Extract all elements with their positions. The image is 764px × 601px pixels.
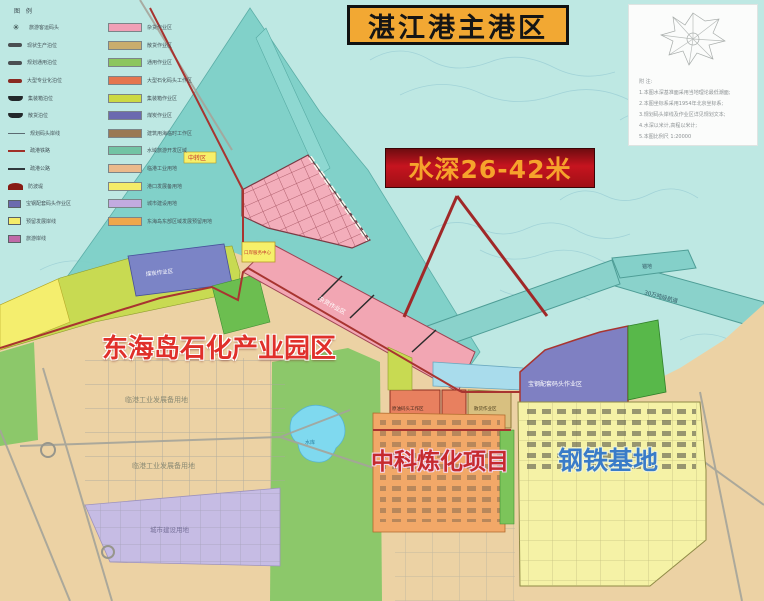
legend-item: 疏港公路 bbox=[8, 160, 108, 178]
ann-industry-1: 临港工业发展备用地 bbox=[125, 395, 188, 404]
legend-area-item: 通用作业区 bbox=[108, 54, 246, 72]
depth-callout: 水深26-42米 bbox=[385, 148, 595, 188]
legend-item-label: 大型专业化泊位 bbox=[27, 77, 62, 84]
legend-item: 现状生产泊位 bbox=[8, 37, 108, 55]
legend-item: 大型专业化泊位 bbox=[8, 72, 108, 90]
sym-blob-icon bbox=[8, 43, 22, 47]
legend-color-swatch bbox=[108, 94, 142, 103]
legend-item: 规划通用泊位 bbox=[8, 54, 108, 72]
legend-color-swatch bbox=[108, 23, 142, 32]
legend-area-label: 城市建设用地 bbox=[147, 200, 177, 207]
sym-blob-icon bbox=[8, 61, 22, 65]
sym-line-icon bbox=[8, 133, 25, 134]
sym-ship-icon bbox=[8, 96, 23, 101]
sym-line-dark-icon bbox=[8, 168, 25, 170]
legend-area-label: 散货作业区 bbox=[147, 42, 172, 49]
legend-area-label: 通用作业区 bbox=[147, 59, 172, 66]
legend-item-label: 散货泊位 bbox=[28, 112, 48, 119]
green-left-edge bbox=[0, 342, 38, 446]
legend-item: 规划码头岸线 bbox=[8, 125, 108, 143]
legend-color-swatch bbox=[108, 58, 142, 67]
green-belt bbox=[270, 348, 382, 601]
legend-area-list: 杂货作业区散货作业区通用作业区大型石化码头工作区集装箱作业区煤炭作业区建筑用海临… bbox=[108, 19, 246, 248]
label-petrochemical-park: 东海岛石化产业园区 bbox=[102, 328, 336, 365]
legend-area-item: 城市建设用地 bbox=[108, 195, 246, 213]
legend-item: 防波堤 bbox=[8, 177, 108, 195]
legend-item-label: 宝钢配套码头作业区 bbox=[26, 200, 71, 207]
legend-color-swatch bbox=[108, 217, 142, 226]
legend-item: 集装箱泊位 bbox=[8, 89, 108, 107]
sym-arc-icon bbox=[8, 183, 23, 190]
legend-item-label: 预留发展岸线 bbox=[26, 218, 56, 225]
note-line: 3.规划码头岸线及作业区详见规划文本; bbox=[639, 110, 753, 121]
sym-anchor-icon: ✳ bbox=[8, 24, 24, 32]
note-line: 5.本图比例尺 1:20000 bbox=[639, 132, 753, 143]
legend-area-label: 建筑用海临时工作区 bbox=[147, 130, 192, 137]
legend-color-swatch bbox=[108, 164, 142, 173]
legend-color-swatch bbox=[108, 111, 142, 120]
legend-area-item: 煤炭作业区 bbox=[108, 107, 246, 125]
note-line: 2.本图坐标系采用1954年北京坐标系; bbox=[639, 99, 753, 110]
legend-item: 旅游岸线 bbox=[8, 230, 108, 248]
ann-service: 口岸服务中心 bbox=[244, 249, 271, 256]
ann-lake: 水库 bbox=[305, 439, 315, 446]
legend-item: ✳旅游客运码头 bbox=[8, 19, 108, 37]
legend-item: 疏港铁路 bbox=[8, 142, 108, 160]
legend-symbol-list: ✳旅游客运码头现状生产泊位规划通用泊位大型专业化泊位集装箱泊位散货泊位规划码头岸… bbox=[8, 19, 108, 248]
legend-title: 图 例 bbox=[14, 6, 246, 15]
legend-area-item: 东海岛东部区域发展预留用地 bbox=[108, 213, 246, 231]
map-title: 湛江港主港区 bbox=[368, 6, 548, 45]
ann-anchorage: 锚地 bbox=[642, 263, 652, 270]
legend-color-swatch bbox=[108, 129, 142, 138]
legend-area-label: 港口发展备用地 bbox=[147, 183, 182, 190]
legend-item-label: 规划通用泊位 bbox=[27, 59, 57, 66]
legend-item: 散货泊位 bbox=[8, 107, 108, 125]
legend-area-label: 煤炭作业区 bbox=[147, 112, 172, 119]
legend-area-item: 集装箱作业区 bbox=[108, 89, 246, 107]
sym-rect-icon bbox=[8, 235, 21, 243]
sym-blob-red-icon bbox=[8, 79, 22, 83]
ann-oil: 原油码头工作区 bbox=[392, 405, 424, 412]
map-title-box: 湛江港主港区 bbox=[347, 5, 569, 45]
legend-area-item: 杂货作业区 bbox=[108, 19, 246, 37]
road-grid-industrial bbox=[85, 358, 285, 503]
legend-color-swatch bbox=[108, 41, 142, 50]
ann-city: 城市建设用地 bbox=[150, 525, 190, 534]
legend-area-item: 港口发展备用地 bbox=[108, 177, 246, 195]
notes-box: 附 注:1.本图水深基准面采用当地理论最低潮面;2.本图坐标系采用1954年北京… bbox=[628, 4, 758, 146]
legend-item-label: 集装箱泊位 bbox=[28, 95, 53, 102]
legend-area-label: 水域旅游开发区域 bbox=[147, 147, 187, 154]
sym-rect-icon bbox=[8, 217, 21, 225]
legend-item-label: 旅游客运码头 bbox=[29, 24, 59, 31]
note-line: 4.水深以米计,高程以米计; bbox=[639, 121, 753, 132]
legend: 图 例 ✳旅游客运码头现状生产泊位规划通用泊位大型专业化泊位集装箱泊位散货泊位规… bbox=[8, 6, 246, 248]
legend-item-label: 现状生产泊位 bbox=[27, 42, 57, 49]
legend-item-label: 旅游岸线 bbox=[26, 235, 46, 242]
note-line: 附 注: bbox=[639, 77, 753, 88]
legend-area-item: 大型石化码头工作区 bbox=[108, 72, 246, 90]
legend-area-item: 临港工业用地 bbox=[108, 160, 246, 178]
note-line: 1.本图水深基准面采用当地理论最低潮面; bbox=[639, 88, 753, 99]
label-zhongke-refining: 中科炼化项目 bbox=[371, 442, 509, 476]
legend-area-item: 建筑用海临时工作区 bbox=[108, 125, 246, 143]
map-page: 临港工业发展备用地 临港工业发展备用地 城市建设用地 杂货作业区 煤炭作业区 宝… bbox=[0, 0, 764, 601]
legend-area-label: 集装箱作业区 bbox=[147, 95, 177, 102]
ann-industry-2: 临港工业发展备用地 bbox=[132, 461, 195, 470]
legend-item-label: 疏港公路 bbox=[30, 165, 50, 172]
legend-color-swatch bbox=[108, 199, 142, 208]
legend-item: 预留发展岸线 bbox=[8, 213, 108, 231]
legend-color-swatch bbox=[108, 76, 142, 85]
legend-color-swatch bbox=[108, 146, 142, 155]
legend-item-label: 防波堤 bbox=[28, 183, 43, 190]
notes-lines: 附 注:1.本图水深基准面采用当地理论最低潮面;2.本图坐标系采用1954年北京… bbox=[639, 77, 753, 143]
wind-rose bbox=[629, 7, 759, 73]
legend-color-swatch bbox=[108, 182, 142, 191]
legend-area-item: 水域旅游开发区域 bbox=[108, 142, 246, 160]
legend-item: 宝钢配套码头作业区 bbox=[8, 195, 108, 213]
legend-area-item: 散货作业区 bbox=[108, 37, 246, 55]
legend-area-label: 临港工业用地 bbox=[147, 165, 177, 172]
label-steel-base: 钢铁基地 bbox=[558, 441, 658, 477]
sym-rect-icon bbox=[8, 200, 21, 208]
legend-area-label: 大型石化码头工作区 bbox=[147, 77, 192, 84]
sym-ship-icon bbox=[8, 113, 23, 118]
legend-item-label: 规划码头岸线 bbox=[30, 130, 60, 137]
ann-baosteel: 宝钢配套码头作业区 bbox=[528, 380, 582, 388]
depth-label: 水深26-42米 bbox=[409, 150, 572, 186]
ann-bulk: 散货作业区 bbox=[474, 405, 497, 412]
legend-area-label: 东海岛东部区域发展预留用地 bbox=[147, 218, 212, 225]
legend-item-label: 疏港铁路 bbox=[30, 147, 50, 154]
legend-area-label: 杂货作业区 bbox=[147, 24, 172, 31]
sym-line-red-icon bbox=[8, 150, 25, 152]
